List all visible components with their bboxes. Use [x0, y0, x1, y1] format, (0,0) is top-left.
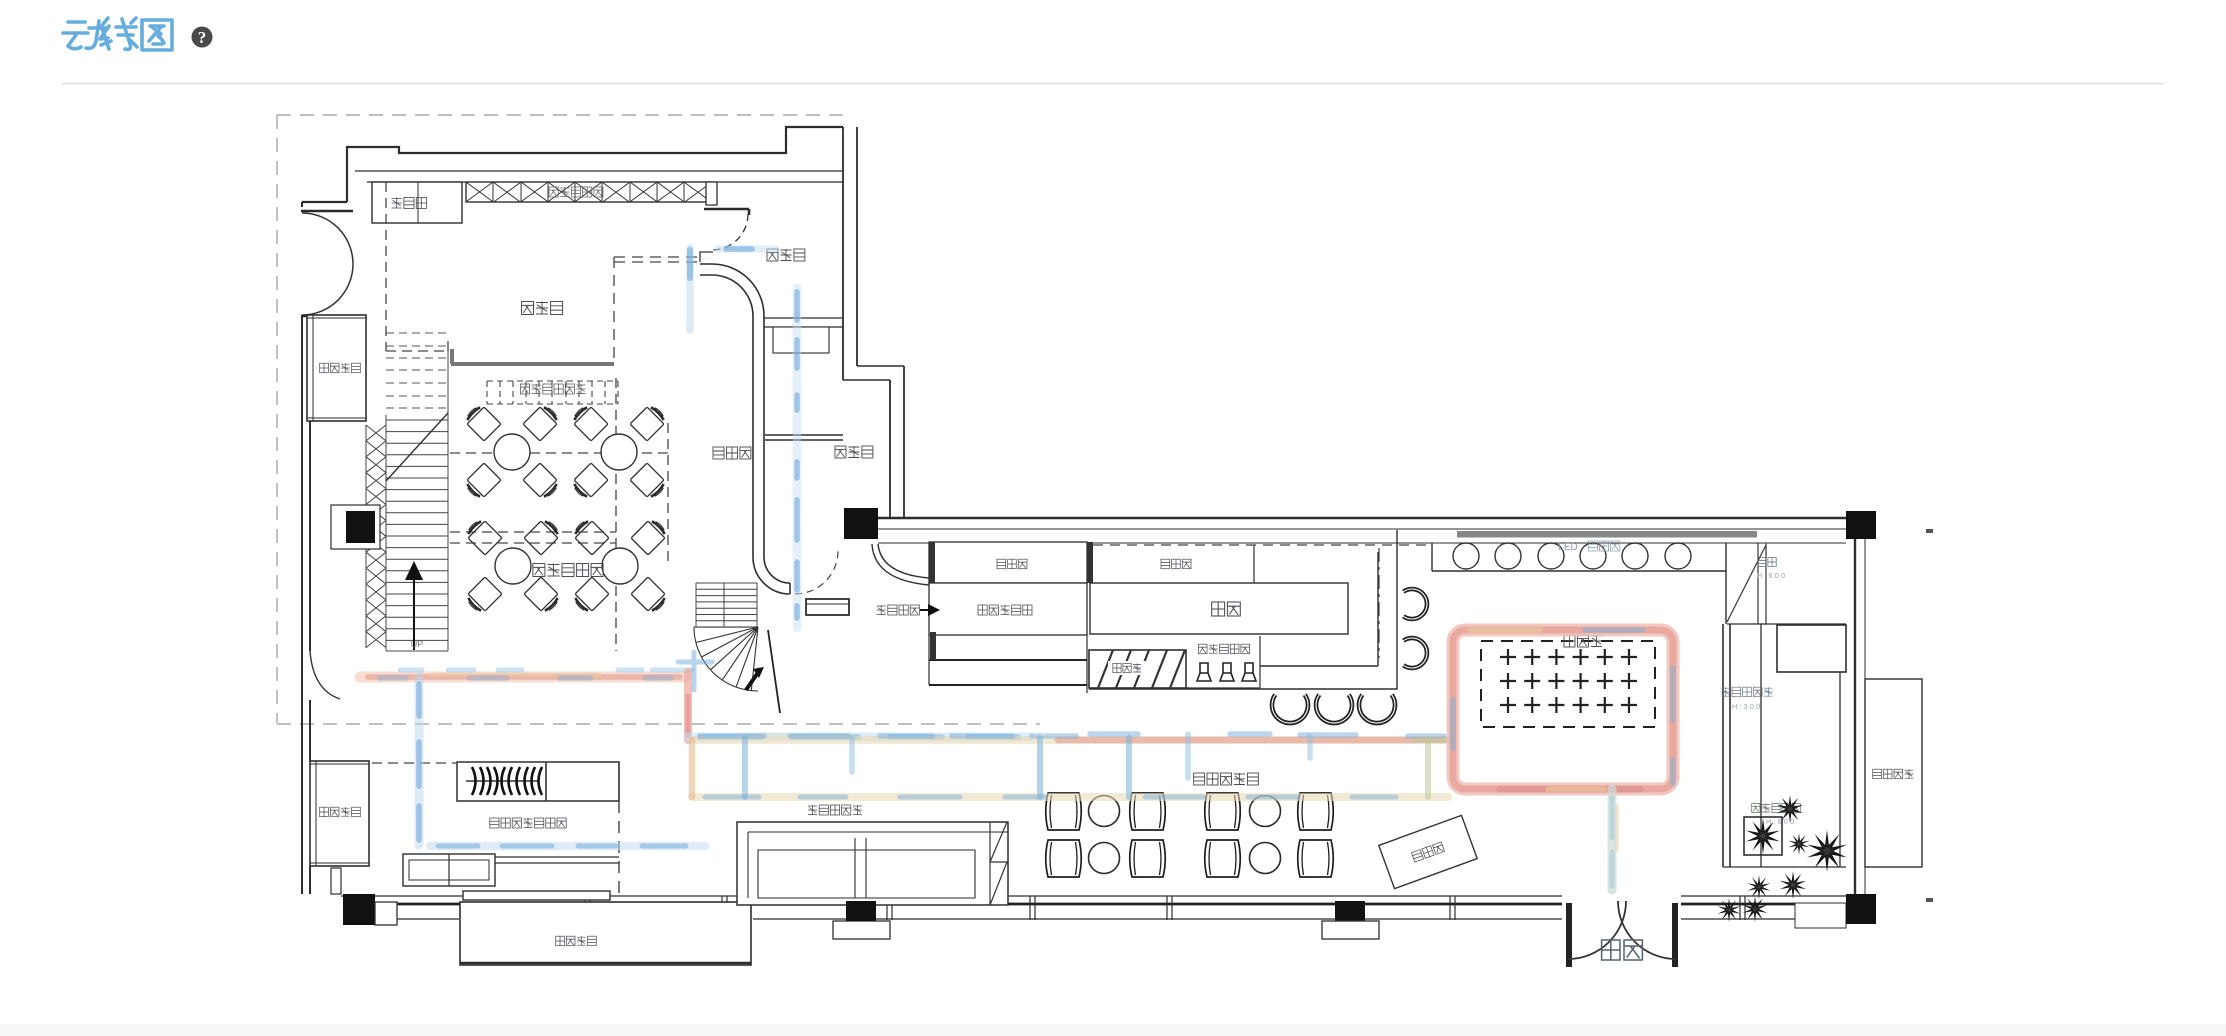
svg-text:LED: LED	[1558, 542, 1577, 553]
svg-text:UP: UP	[411, 639, 424, 649]
svg-text:H : 3 0 0: H : 3 0 0	[1732, 702, 1760, 711]
svg-text:H : 6 0 0: H : 6 0 0	[1757, 571, 1785, 580]
svg-text:?: ?	[198, 28, 207, 47]
